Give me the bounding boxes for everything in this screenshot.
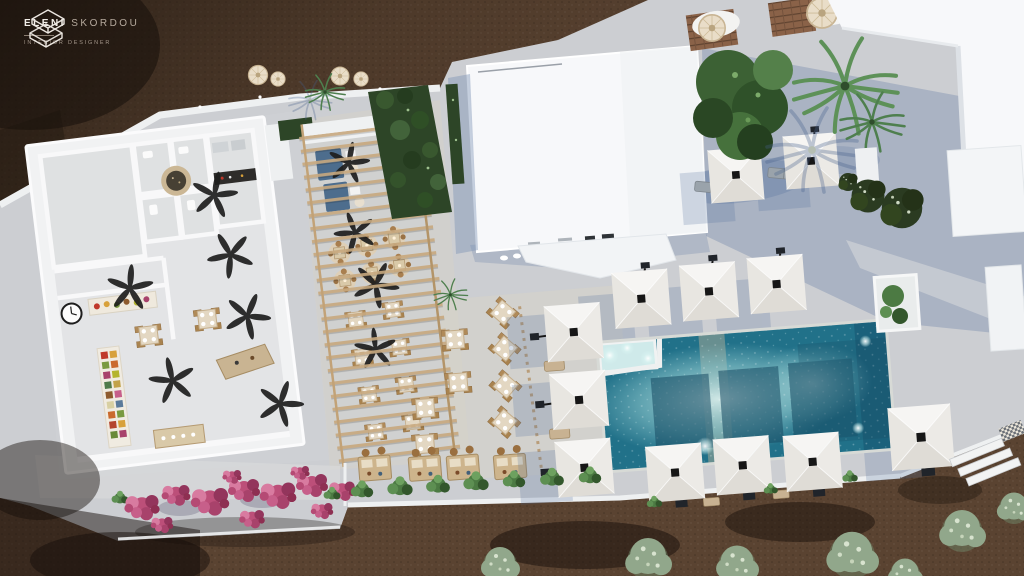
thatch-parasol (354, 72, 368, 86)
thatch-parasol (699, 15, 725, 41)
sun-lounger (703, 497, 720, 506)
thatch-parasol (271, 72, 285, 86)
main-building-roof (446, 46, 707, 278)
resort-scene (0, 0, 1024, 576)
logo-mark-icon (24, 6, 70, 50)
thatch-parasol (331, 67, 349, 85)
daybed (358, 455, 392, 481)
aerial-render-canvas: ELENI SKORDOU INTERIOR DESIGNER (0, 0, 1024, 576)
thatch-parasol (248, 65, 267, 84)
courtyard-planter (874, 275, 920, 332)
brand-logo: ELENI SKORDOU INTERIOR DESIGNER (24, 6, 139, 46)
restaurant-floorplan (26, 116, 313, 474)
logo-name-secondary: SKORDOU (71, 18, 139, 29)
